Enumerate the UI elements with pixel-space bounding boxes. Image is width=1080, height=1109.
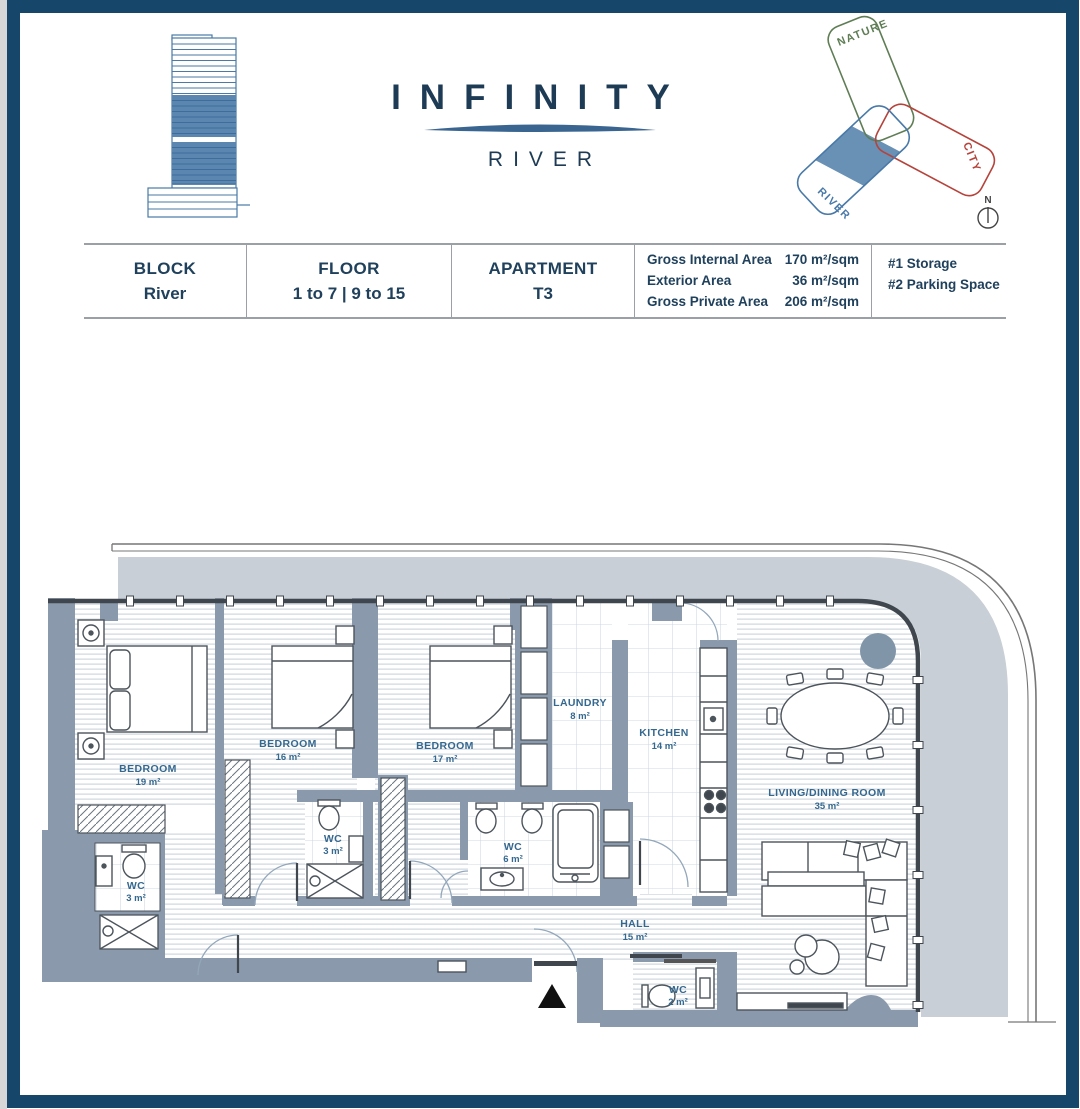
block-label: BLOCK — [134, 259, 196, 279]
svg-text:3 m²: 3 m² — [323, 846, 343, 857]
apartment-cell: APARTMENT T3 — [451, 245, 634, 317]
logo-base — [148, 188, 237, 217]
toilet-icon — [318, 800, 340, 830]
apartment-location-highlight — [815, 114, 900, 198]
compass-north-icon: N — [978, 195, 998, 228]
area-label: Gross Private Area — [647, 292, 768, 312]
bathtub-icon — [553, 804, 598, 882]
tv-bench-icon — [737, 993, 847, 1010]
svg-text:15 m²: 15 m² — [623, 932, 648, 943]
page-edge-strip — [0, 0, 7, 1109]
svg-text:8 m²: 8 m² — [570, 711, 590, 722]
column-icon — [860, 633, 896, 669]
wardrobe-icon — [225, 760, 250, 898]
wardrobe-icon — [78, 805, 165, 833]
nature-label: NATURE — [836, 17, 891, 48]
svg-text:17 m²: 17 m² — [433, 754, 458, 765]
svg-text:BEDROOM: BEDROOM — [119, 763, 177, 775]
wardrobe-icon — [381, 778, 405, 900]
svg-text:35 m²: 35 m² — [815, 801, 840, 812]
area-label: Gross Internal Area — [647, 250, 772, 270]
logo-band-upper — [172, 95, 236, 137]
toilet-icon — [122, 845, 146, 878]
area-value: 170 m²/sqm — [785, 250, 859, 270]
area-value: 36 m²/sqm — [792, 271, 859, 291]
area-row: Gross Private Area 206 m²/sqm — [647, 292, 859, 312]
svg-text:6 m²: 6 m² — [503, 854, 523, 865]
svg-text:WC: WC — [504, 841, 522, 853]
svg-text:BEDROOM: BEDROOM — [416, 740, 474, 752]
block-cell: BLOCK River — [84, 245, 246, 317]
bed-icon — [107, 646, 207, 732]
svg-text:HALL: HALL — [620, 918, 650, 930]
svg-text:LIVING/DINING ROOM: LIVING/DINING ROOM — [768, 787, 885, 799]
extras-cell: #1 Storage #2 Parking Space — [871, 245, 1005, 317]
svg-text:LAUNDRY: LAUNDRY — [553, 697, 607, 709]
svg-text:WC: WC — [324, 833, 342, 845]
sink-icon — [696, 968, 714, 1008]
entrance-arrow-icon — [538, 984, 566, 1008]
dining-table-icon — [767, 669, 903, 763]
floor-cell: FLOOR 1 to 7 | 9 to 15 — [246, 245, 451, 317]
compass-n-label: N — [984, 195, 991, 206]
svg-text:2 m²: 2 m² — [668, 997, 688, 1008]
areas-cell: Gross Internal Area 170 m²/sqm Exterior … — [634, 245, 871, 317]
bidet-icon — [522, 803, 543, 833]
toilet-icon — [476, 803, 497, 833]
project-title: INFINITY — [391, 78, 689, 117]
shower-icon — [307, 864, 363, 898]
svg-text:14 m²: 14 m² — [652, 741, 677, 752]
entrance-door-panel — [534, 961, 577, 966]
vanity-sink-icon — [481, 868, 523, 890]
river-label: RIVER — [815, 186, 853, 223]
svg-text:KITCHEN: KITCHEN — [639, 727, 688, 739]
hall-cabinet-icon — [438, 961, 466, 972]
apartment-label: APARTMENT — [488, 259, 597, 279]
svg-text:19 m²: 19 m² — [136, 777, 161, 788]
apartment-info-table: BLOCK River FLOOR 1 to 7 | 9 to 15 APART… — [84, 243, 1006, 319]
title-swoosh — [420, 122, 660, 136]
apartment-value: T3 — [533, 284, 553, 304]
svg-text:WC: WC — [669, 984, 687, 996]
parking-item: #2 Parking Space — [888, 275, 1000, 295]
logo-band-lower — [172, 142, 236, 185]
block-value: River — [144, 284, 187, 304]
project-subtitle: RIVER — [300, 148, 780, 172]
svg-text:16 m²: 16 m² — [276, 752, 301, 763]
kitchen-counter-icon — [700, 648, 727, 892]
area-row: Exterior Area 36 m²/sqm — [647, 271, 859, 291]
area-label: Exterior Area — [647, 271, 731, 291]
site-orientation-diagram: NATURE CITY RIVER N — [795, 14, 1010, 239]
area-row: Gross Internal Area 170 m²/sqm — [647, 250, 859, 270]
building-logo — [144, 34, 256, 226]
city-label: CITY — [960, 141, 983, 174]
svg-text:WC: WC — [127, 880, 145, 892]
floor-plan: BEDROOM 19 m² BEDROOM 16 m² BEDROOM 17 m… — [20, 540, 1060, 1085]
sink-icon — [349, 836, 363, 862]
storage-item: #1 Storage — [888, 254, 957, 274]
floor-label: FLOOR — [318, 259, 380, 279]
svg-text:BEDROOM: BEDROOM — [259, 738, 317, 750]
svg-text:3 m²: 3 m² — [126, 893, 146, 904]
floor-value: 1 to 7 | 9 to 15 — [293, 284, 405, 304]
sink-icon — [96, 856, 112, 886]
area-value: 206 m²/sqm — [785, 292, 859, 312]
